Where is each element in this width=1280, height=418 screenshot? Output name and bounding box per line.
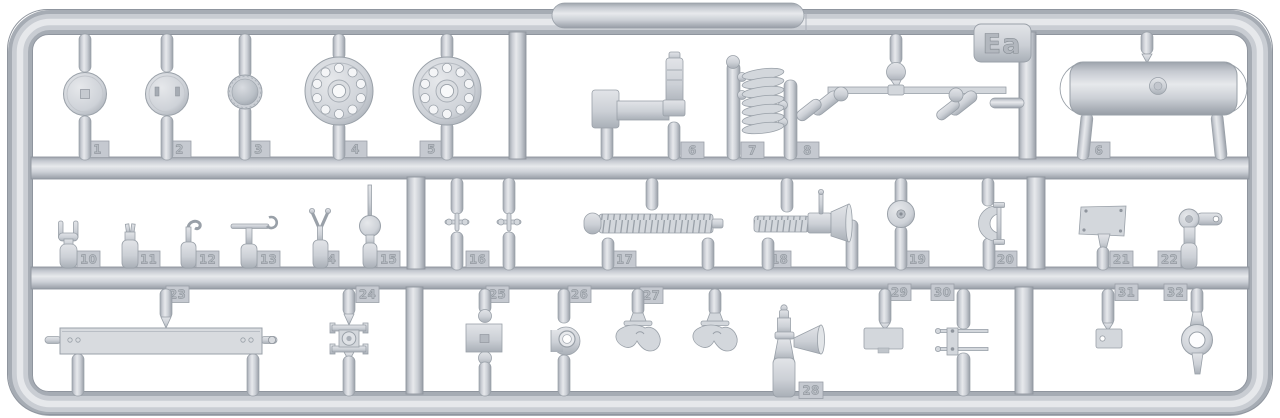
part-number-17: 17 — [616, 253, 633, 267]
tab-21: 21 — [1110, 251, 1133, 268]
part-number-30: 30 — [934, 286, 951, 300]
tab-31: 31 — [1115, 284, 1138, 301]
part-number-22: 22 — [1161, 253, 1178, 267]
part-15-ball-lever — [360, 185, 381, 268]
tab-17: 17 — [613, 251, 636, 268]
tab-22: 22 — [1158, 251, 1181, 268]
tab-29: 29 — [888, 284, 911, 301]
part-26-bearing-bracket — [551, 289, 580, 396]
tab-13: 13 — [257, 251, 280, 268]
runner-divider-2 — [31, 267, 1249, 289]
part-number-2: 2 — [175, 143, 184, 157]
part-10-fork-fitting — [59, 221, 79, 268]
runner-vertical-r1a — [509, 32, 526, 159]
sprue-code-label: Ea — [983, 29, 1022, 60]
tab-6: 6 — [681, 142, 704, 159]
part-number-3: 3 — [254, 143, 263, 157]
part-number-6: 6 — [688, 144, 697, 158]
tow-hook — [616, 313, 660, 351]
runner-vertical-r3a — [406, 287, 423, 394]
part-number-8: 8 — [803, 144, 812, 158]
part-6-bracket-arm — [592, 52, 685, 160]
sprue-illustration: Ea 1 2 3 4 5 6 7 8 9 10 11 12 13 14 15 1… — [0, 0, 1280, 418]
part-number-13: 13 — [260, 253, 277, 267]
part-24-roller-bracket — [330, 289, 368, 396]
part-18-spring-valve — [754, 178, 858, 270]
part-number-10: 10 — [80, 253, 97, 267]
runner-vertical-r3b — [1015, 287, 1033, 394]
runner-divider-1 — [31, 157, 1249, 179]
tab-11: 11 — [137, 251, 160, 268]
tab-4: 4 — [344, 141, 367, 158]
part-number-12: 12 — [199, 253, 216, 267]
tow-hook — [693, 313, 737, 351]
block-body — [864, 328, 903, 349]
part-number-26: 26 — [571, 288, 588, 302]
road-wheel — [305, 57, 373, 125]
part-number-9: 9 — [1094, 143, 1103, 157]
top-runner-capsule — [552, 3, 804, 28]
coupling-pin — [497, 213, 521, 231]
shackle-pin — [997, 204, 1001, 245]
part-number-11: 11 — [140, 253, 157, 267]
shackle-bow — [979, 206, 1000, 241]
part-9-fuel-tank — [1060, 32, 1247, 160]
part-30-rod-bracket — [935, 289, 988, 396]
part-number-25: 25 — [489, 288, 506, 302]
runner-vertical-r2b — [1027, 177, 1045, 269]
part-number-21: 21 — [1113, 253, 1130, 267]
square-hole — [81, 90, 90, 99]
sprue-code-tab: Ea — [974, 24, 1031, 62]
part-25-backing-plate — [466, 289, 502, 396]
tie-rod-bar — [828, 87, 1006, 94]
tab-32: 32 — [1164, 284, 1187, 301]
horn-cone — [794, 325, 821, 354]
eye-hole — [1189, 332, 1205, 348]
tab-19: 19 — [906, 251, 929, 268]
part-number-19: 19 — [909, 253, 926, 267]
tab-30: 30 — [931, 284, 954, 301]
tab-20: 20 — [994, 251, 1017, 268]
tab-16: 16 — [466, 251, 489, 268]
part-22-crank-lever — [1179, 209, 1222, 269]
tab-10: 10 — [77, 251, 100, 268]
part-number-24: 24 — [359, 288, 376, 302]
sprue-ea-svg: Ea 1 2 3 4 5 6 7 8 9 10 11 12 13 14 15 1… — [0, 0, 1280, 418]
part-number-32: 32 — [1167, 286, 1184, 300]
part-11-valve-stem — [122, 224, 138, 268]
part-number-15: 15 — [380, 253, 397, 267]
part-17-threaded-spring-rod — [584, 178, 723, 270]
part-number-7: 7 — [748, 144, 757, 158]
part-number-1: 1 — [93, 143, 102, 157]
tab-28: 28 — [799, 382, 823, 399]
part-number-4: 4 — [351, 143, 360, 157]
coupling-pin — [445, 213, 469, 231]
part-number-28: 28 — [802, 384, 819, 398]
tab-26: 26 — [568, 286, 591, 303]
part-number-16: 16 — [469, 253, 486, 267]
part-number-27: 27 — [643, 289, 660, 303]
runner-vertical-r2a — [407, 177, 425, 269]
tab-24: 24 — [356, 286, 379, 303]
part-number-31: 31 — [1118, 286, 1135, 300]
tab-12: 12 — [196, 251, 219, 268]
tab-8: 8 — [796, 142, 819, 159]
part-14-fork-mount — [309, 208, 330, 268]
part-number-20: 20 — [997, 253, 1014, 267]
tab-7: 7 — [741, 142, 764, 159]
part-number-5: 5 — [427, 143, 436, 157]
tab-15: 15 — [377, 251, 400, 268]
part-23-side-board — [45, 289, 277, 396]
tab-5: 5 — [420, 141, 443, 158]
spring-coils — [742, 66, 785, 135]
road-wheel — [413, 57, 481, 125]
part-number-29: 29 — [891, 286, 908, 300]
part-27-tow-hooks — [616, 289, 737, 351]
